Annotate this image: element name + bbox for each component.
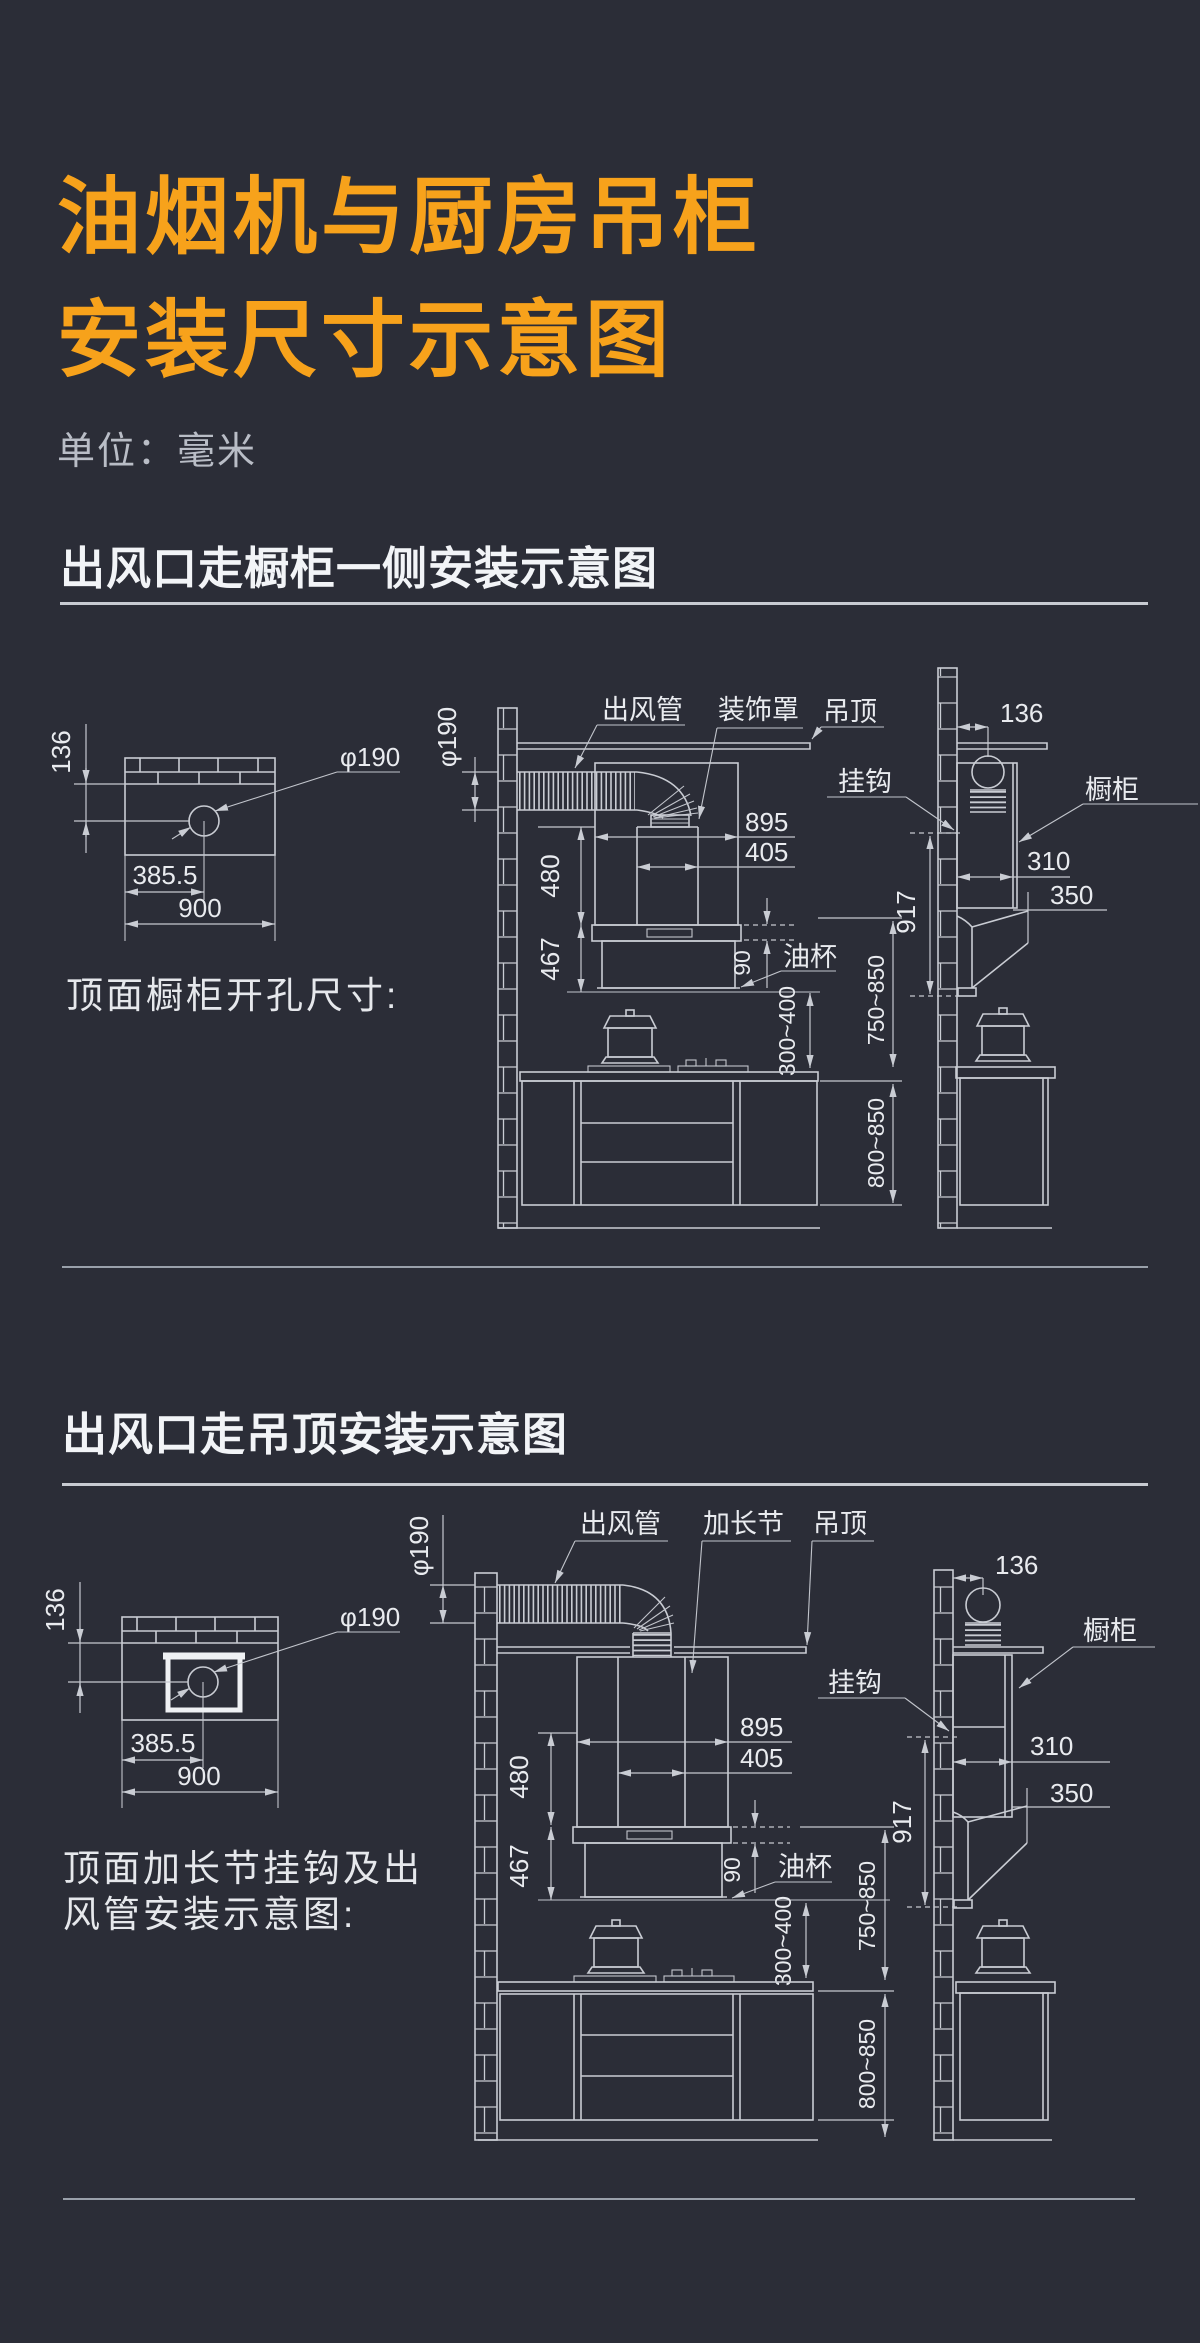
d2-front-view: φ190 出风管 加长节 吊顶 895 405 (404, 1509, 894, 2140)
d1-dim-750-850: 750~850 (863, 955, 889, 1045)
section1-heading: 出风口走橱柜一侧安装示意图 (60, 532, 658, 597)
d1-front-view: 吊顶 出风管 装饰罩 φ190 895 405 480 (432, 695, 902, 1228)
d1-dim-385: 385.5 (132, 860, 197, 890)
d2-dim-136-side: 136 (995, 1550, 1038, 1580)
d2-dim-300-400: 300~400 (770, 1896, 796, 1986)
d2-hook-label: 挂钩 (828, 1668, 882, 1698)
d1-dim-480: 480 (535, 854, 565, 897)
d2-oil-cup-label: 油杯 (778, 1852, 832, 1882)
d1-dim-350: 350 (1050, 880, 1093, 910)
d2-dim-800-850: 800~850 (854, 2019, 880, 2109)
d1-dim-895: 895 (745, 807, 788, 837)
d1-ceiling-label: 吊顶 (823, 697, 877, 727)
section-separator-2 (63, 2198, 1135, 2200)
page-title-line1: 油烟机与厨房吊柜 (57, 150, 761, 271)
d2-dim-90: 90 (719, 1857, 745, 1883)
d1-dim-90: 90 (729, 950, 755, 976)
page: { "page": { "title_line1": "油烟机与厨房吊柜", "… (0, 0, 1200, 2343)
d2-duct-dia: φ190 (404, 1516, 434, 1576)
d2-dim-136-opening: 136 (40, 1588, 70, 1631)
d1-dim-hole-dia: φ190 (340, 742, 400, 772)
d2-dim-405: 405 (740, 1743, 783, 1773)
section1-heading-rule (60, 602, 1148, 605)
d1-dim-136-opening: 136 (46, 730, 76, 773)
d1-duct-label: 出风管 (602, 695, 683, 725)
d2-ceiling-label: 吊顶 (813, 1509, 867, 1539)
d1-dim-310: 310 (1027, 846, 1070, 876)
unit-label: 单位：毫米 (57, 420, 257, 475)
d2-dim-467: 467 (504, 1844, 534, 1887)
d2-dim-917: 917 (887, 1800, 917, 1843)
d1-cabinet-label: 橱柜 (1085, 775, 1139, 805)
d1-hook-label: 挂钩 (838, 767, 892, 797)
d2-dim-310: 310 (1030, 1731, 1073, 1761)
d1-oil-cup-label: 油杯 (783, 942, 837, 972)
d1-dim-467: 467 (535, 937, 565, 980)
d1-duct-dia: φ190 (432, 707, 462, 767)
d2-cabinet-label: 橱柜 (1083, 1616, 1137, 1646)
d1-opening-view: 385.5 900 136 φ190 (46, 724, 400, 941)
d1-dim-136-side: 136 (1000, 698, 1043, 728)
d2-dim-895: 895 (740, 1712, 783, 1742)
d2-duct-label: 出风管 (580, 1509, 661, 1539)
diagram2-drawing: 385.5 900 136 φ190 φ190 出风管 加长节 吊顶 (40, 1490, 1200, 2170)
d2-dim-hole-dia: φ190 (340, 1602, 400, 1632)
d2-dim-350: 350 (1050, 1778, 1093, 1808)
d2-dim-750-850: 750~850 (854, 1861, 880, 1951)
diagram1-drawing: 385.5 900 136 φ190 吊顶 出风管 装饰罩 φ190 (40, 640, 1200, 1270)
d1-dim-917: 917 (891, 890, 921, 933)
d2-dim-385: 385.5 (130, 1728, 195, 1758)
d2-opening-view: 385.5 900 136 φ190 (40, 1582, 400, 1808)
page-title-line2: 安装尺寸示意图 (57, 273, 673, 394)
d1-dim-300-400: 300~400 (774, 986, 800, 1076)
d2-dim-900: 900 (177, 1761, 220, 1791)
section2-heading-rule (62, 1483, 1148, 1486)
d2-extension-label: 加长节 (703, 1509, 784, 1539)
d1-dim-800-850: 800~850 (863, 1098, 889, 1188)
d2-dim-480: 480 (504, 1755, 534, 1798)
d1-dim-900: 900 (178, 893, 221, 923)
d1-dim-405: 405 (745, 837, 788, 867)
d1-cover-label: 装饰罩 (718, 695, 799, 725)
section2-heading: 出风口走吊顶安装示意图 (62, 1398, 568, 1463)
